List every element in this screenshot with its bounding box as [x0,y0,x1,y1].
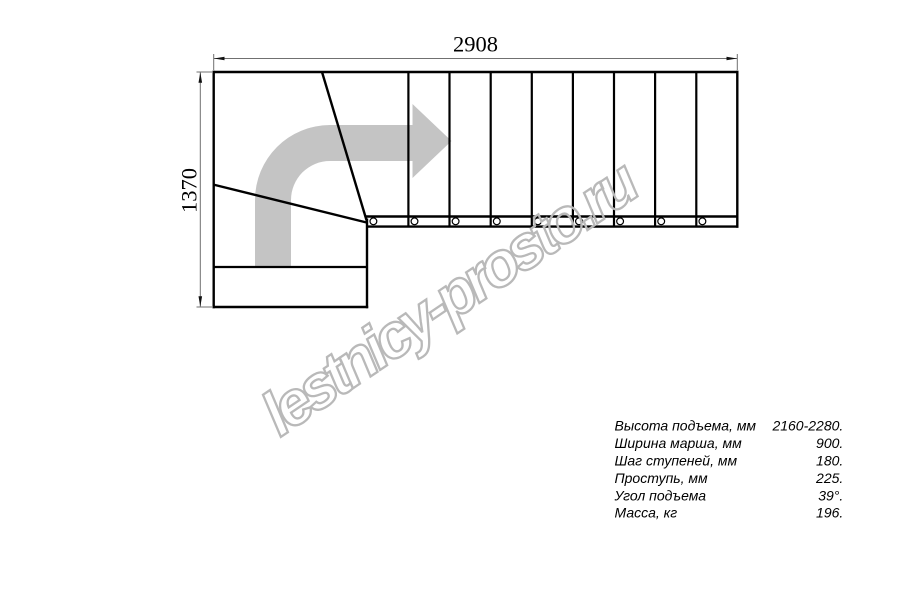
svg-text:Шаг ступеней, мм: Шаг ступеней, мм [615,453,738,469]
svg-text:Ширина марша, мм: Ширина марша, мм [615,435,743,451]
svg-text:Угол подъема: Угол подъема [614,487,707,503]
svg-text:180.: 180. [816,453,843,469]
svg-text:Проступь, мм: Проступь, мм [615,470,709,486]
svg-text:2908: 2908 [453,32,498,57]
svg-text:Масса, кг: Масса, кг [615,505,678,521]
svg-text:2160-2280.: 2160-2280. [771,418,843,434]
svg-text:196.: 196. [816,505,843,521]
svg-text:900.: 900. [816,435,843,451]
svg-text:1370: 1370 [177,168,202,213]
svg-text:225.: 225. [815,470,843,486]
svg-text:Высота подъема, мм: Высота подъема, мм [615,418,757,434]
svg-text:39°.: 39°. [818,487,843,503]
